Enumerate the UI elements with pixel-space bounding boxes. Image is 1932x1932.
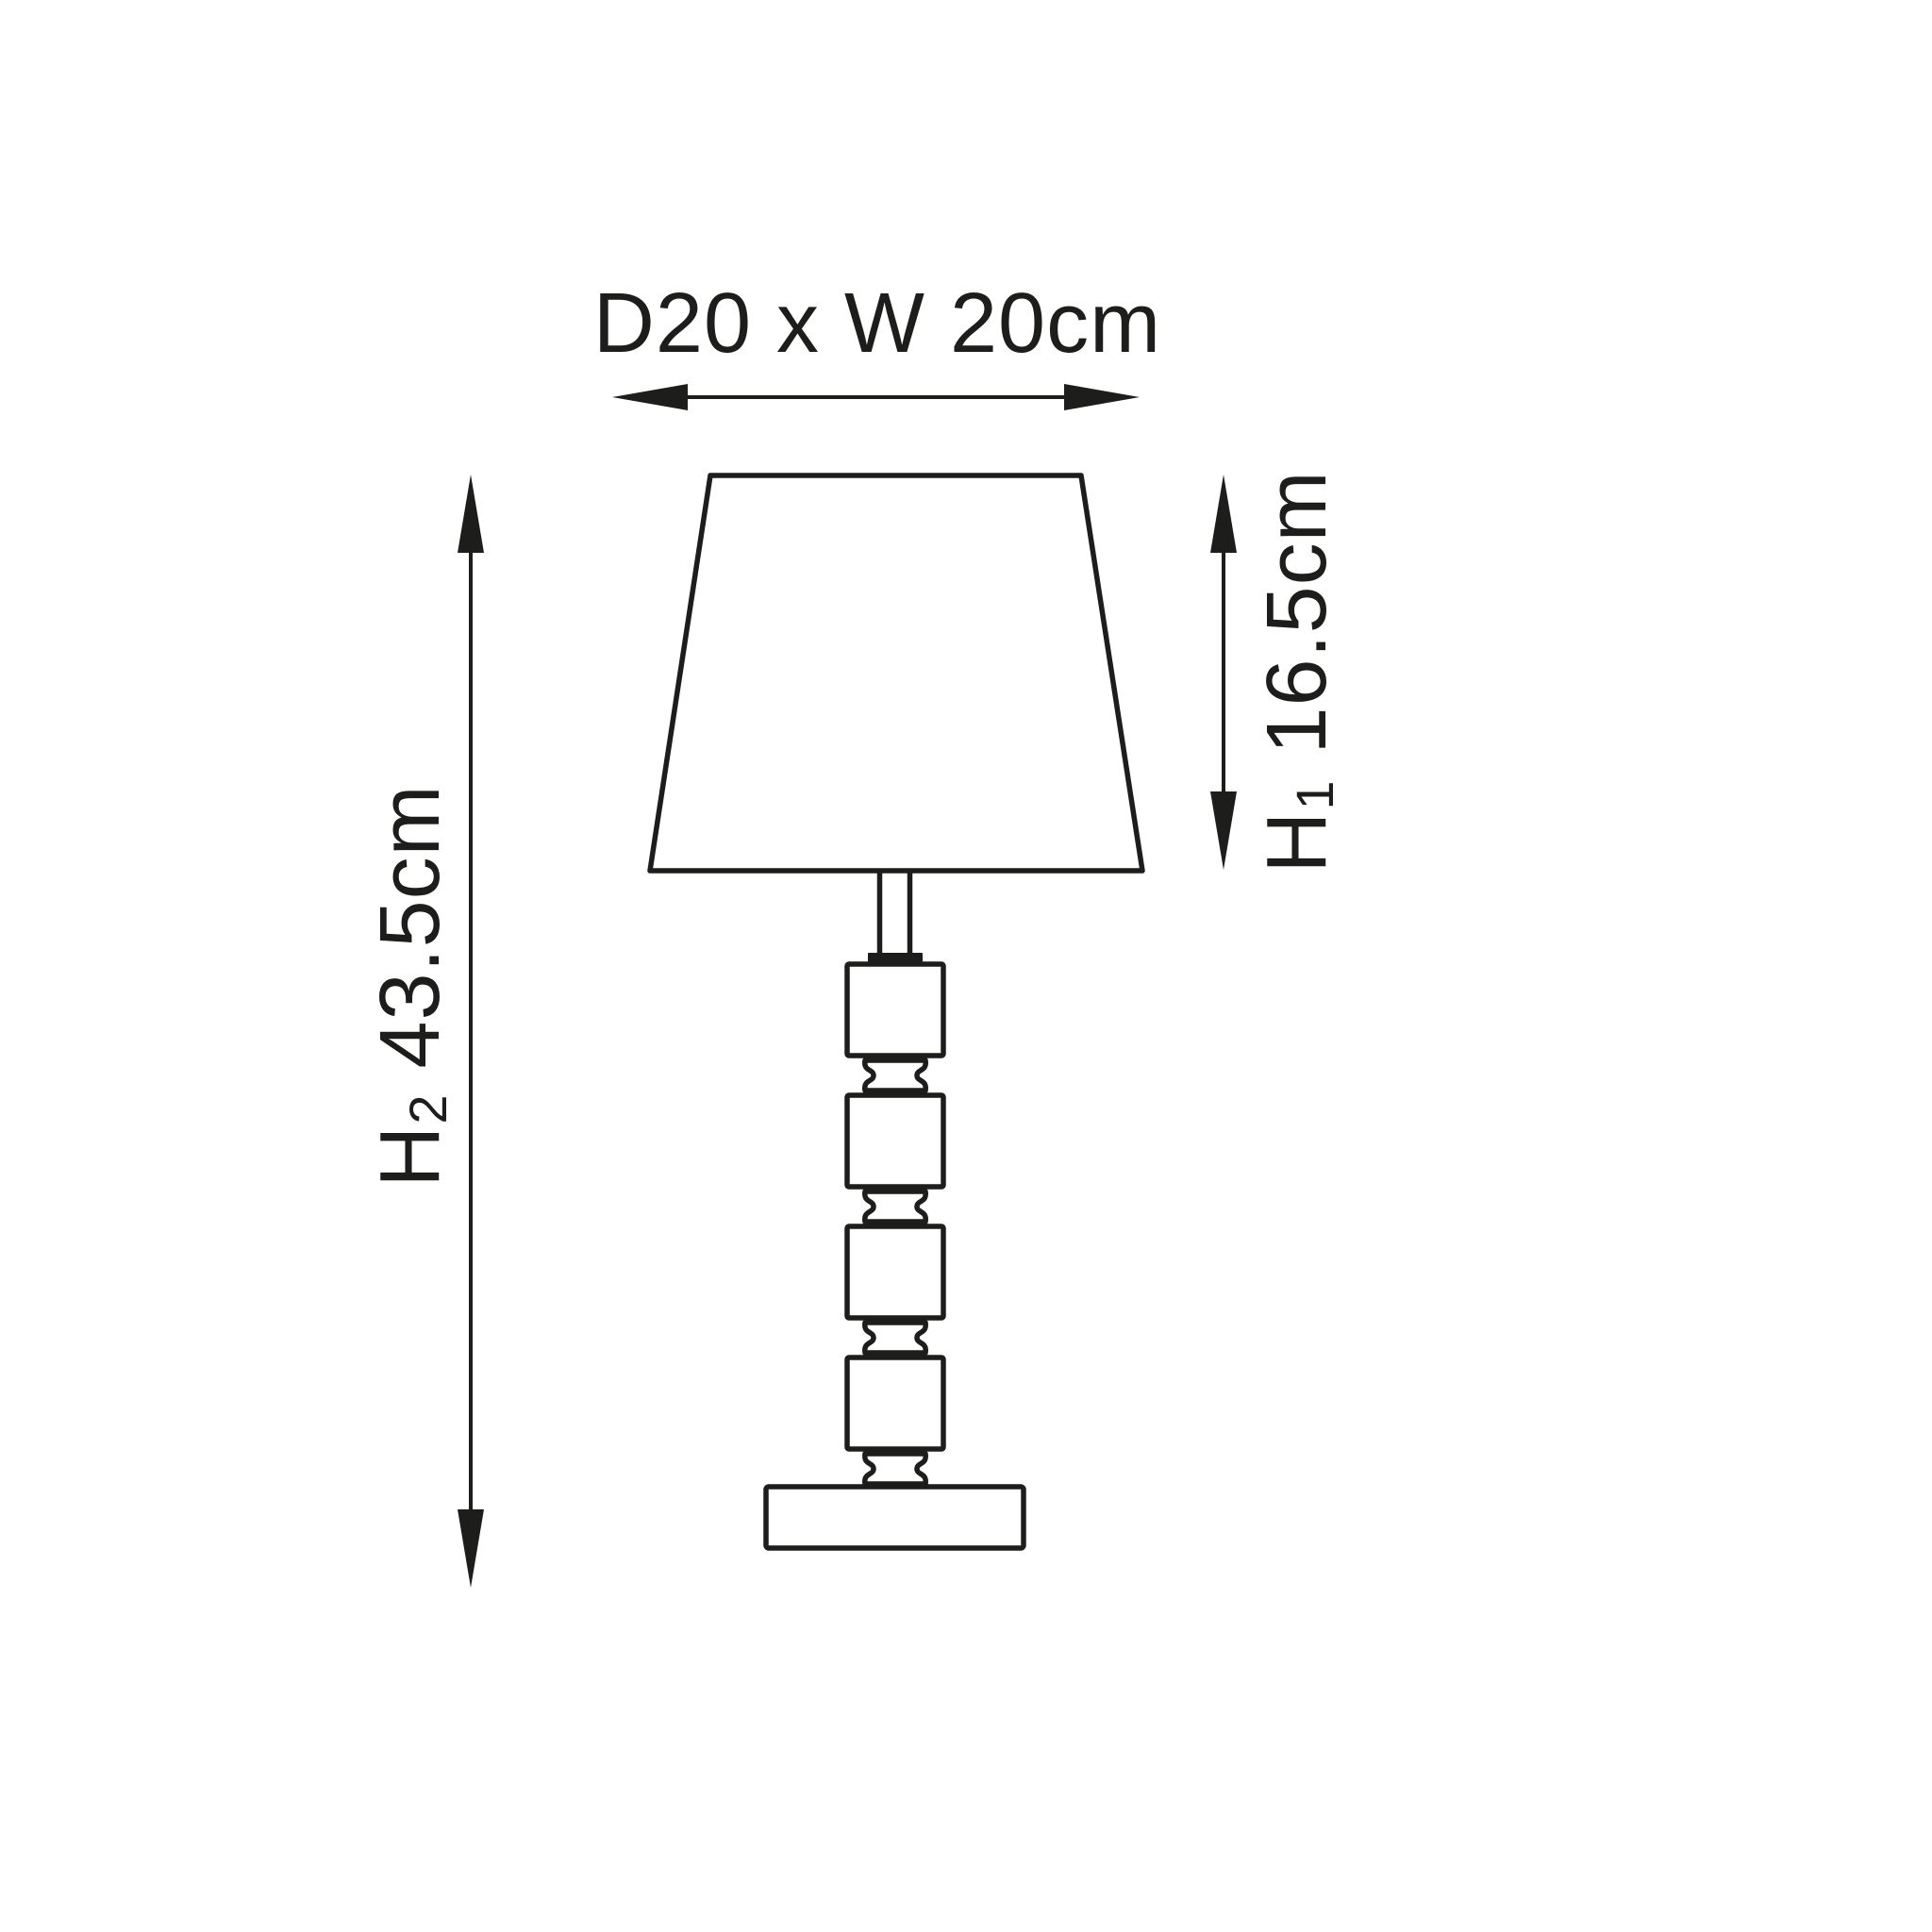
stem-cube-3 — [847, 1226, 943, 1318]
shade-height-dimension-label: H116.5cm — [1241, 247, 1354, 1096]
shade-height-dimension-arrow — [1210, 475, 1237, 870]
width-dimension-label: D20 x W 20cm — [453, 272, 1302, 375]
width-dimension-arrow — [612, 384, 1140, 410]
stem-connector-1 — [865, 1060, 925, 1091]
width-arrow-head-left — [612, 384, 688, 410]
shade-height-arrow-head-top — [1210, 475, 1237, 553]
lamp-line-drawing — [650, 475, 1142, 1548]
overall-height-arrow-head-top — [458, 475, 484, 553]
shade-height-subscript: 1 — [1285, 780, 1344, 810]
overall-height-value: 43.5cm — [363, 784, 458, 1068]
stem-connector-4 — [865, 1454, 925, 1484]
shade-height-value: 16.5cm — [1250, 470, 1344, 754]
stem-cube-4 — [847, 1357, 943, 1449]
diagram-canvas: D20 x W 20cm H243.5cm H116.5cm — [0, 0, 1932, 1932]
lamp-shade — [650, 475, 1142, 871]
overall-height-arrow-head-bottom — [458, 1509, 484, 1588]
stem-connector-2 — [865, 1191, 925, 1222]
stem-connector-3 — [865, 1323, 925, 1353]
shade-height-arrow-head-bottom — [1210, 791, 1237, 870]
stem-cube-1 — [847, 964, 943, 1056]
stem-cube-2 — [847, 1095, 943, 1187]
overall-height-dimension-label: H243.5cm — [354, 561, 467, 1410]
overall-height-symbol: H — [363, 1125, 458, 1188]
width-arrow-head-right — [1064, 384, 1140, 410]
overall-height-subscript: 2 — [398, 1094, 458, 1124]
shade-height-symbol: H — [1250, 811, 1344, 874]
lamp-base — [766, 1487, 1024, 1548]
